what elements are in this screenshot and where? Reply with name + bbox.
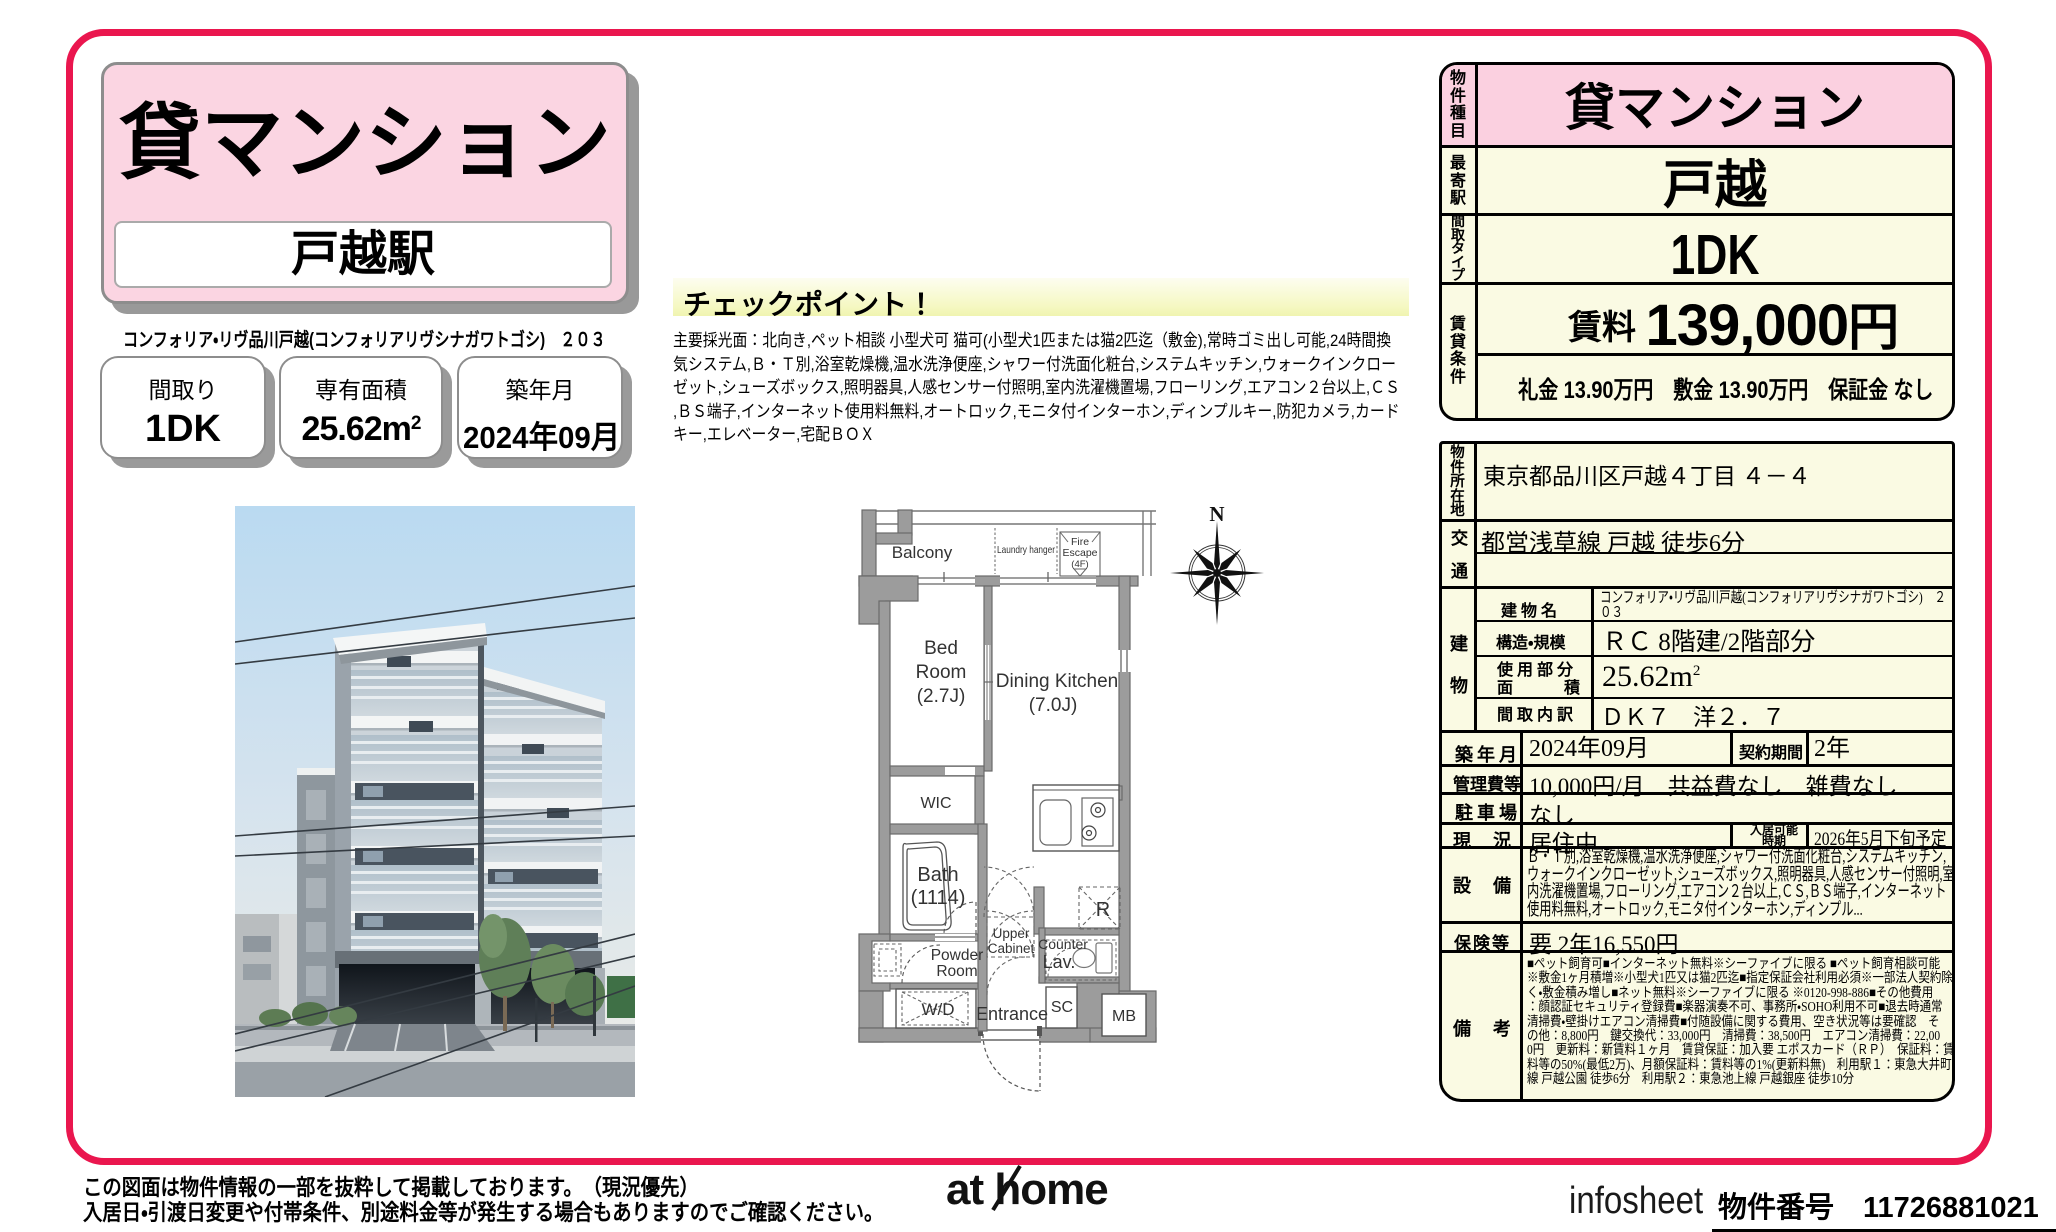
svg-text:Dining Kitchen: Dining Kitchen — [996, 671, 1119, 692]
svg-text:Upper: Upper — [993, 926, 1030, 941]
svg-text:R: R — [1096, 899, 1110, 921]
svg-text:(2.7J): (2.7J) — [917, 686, 966, 707]
svg-text:SC: SC — [1051, 999, 1073, 1016]
svg-text:Room: Room — [916, 662, 967, 683]
svg-text:Balcony: Balcony — [892, 543, 953, 562]
svg-text:Escape: Escape — [1062, 547, 1097, 559]
svg-text:(7.0J): (7.0J) — [1029, 695, 1078, 716]
svg-text:MB: MB — [1112, 1008, 1136, 1025]
svg-text:(4F): (4F) — [1071, 559, 1088, 570]
svg-text:WIC: WIC — [920, 795, 951, 812]
svg-text:Cabinet: Cabinet — [988, 941, 1035, 956]
svg-text:Lav.: Lav. — [1043, 952, 1076, 972]
svg-text:Room: Room — [936, 963, 977, 980]
svg-text:(1114): (1114) — [911, 887, 966, 909]
svg-text:Laundry hanger: Laundry hanger — [997, 544, 1055, 556]
svg-text:Bath: Bath — [917, 864, 958, 886]
svg-text:W/D: W/D — [921, 1000, 954, 1019]
svg-text:Counter: Counter — [1038, 936, 1088, 952]
svg-text:at home: at home — [946, 1165, 1108, 1212]
svg-text:Bed: Bed — [924, 638, 958, 659]
svg-text:N: N — [1209, 502, 1224, 526]
svg-text:Powder: Powder — [931, 947, 984, 964]
svg-text:Entrance: Entrance — [976, 1004, 1048, 1024]
